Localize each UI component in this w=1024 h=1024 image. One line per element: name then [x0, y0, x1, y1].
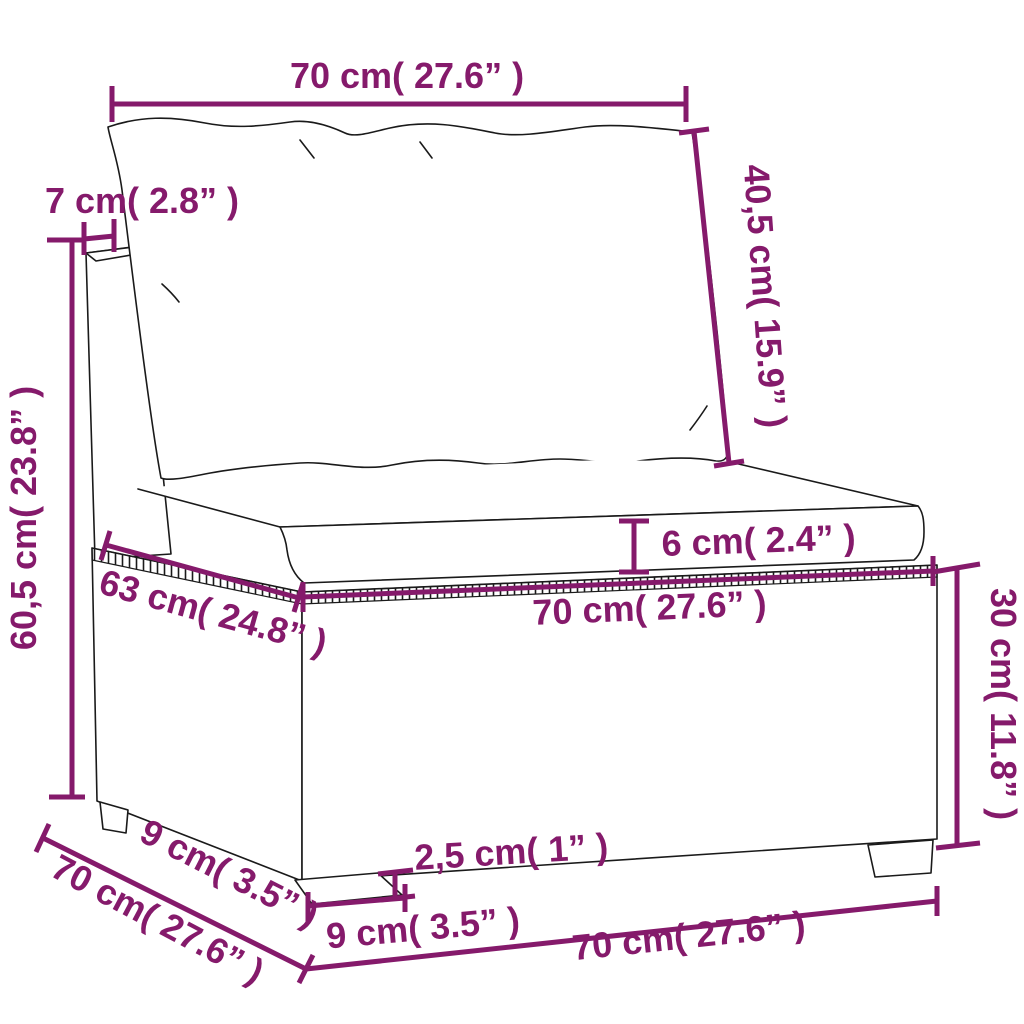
back-cushion — [108, 118, 728, 479]
dimension-diagram-canvas: 70 cm( 27.6” ) 40,5 cm( 15.9” ) 7 cm( 2.… — [0, 0, 1024, 1024]
dim-back-frame-thickness-label: 7 cm( 2.8” ) — [45, 180, 239, 221]
dim-seat-cushion-thickness-label: 6 cm( 2.4” ) — [661, 516, 856, 564]
dim-back-width-label: 70 cm( 27.6” ) — [290, 55, 524, 96]
front-right-leg — [868, 840, 933, 877]
dim-back-total-height-label: 60,5 cm( 23.8” ) — [3, 386, 44, 650]
product-dimension-diagram: 70 cm( 27.6” ) 40,5 cm( 15.9” ) 7 cm( 2.… — [0, 0, 1024, 1024]
dim-base-height-label: 30 cm( 11.8” ) — [983, 588, 1024, 820]
